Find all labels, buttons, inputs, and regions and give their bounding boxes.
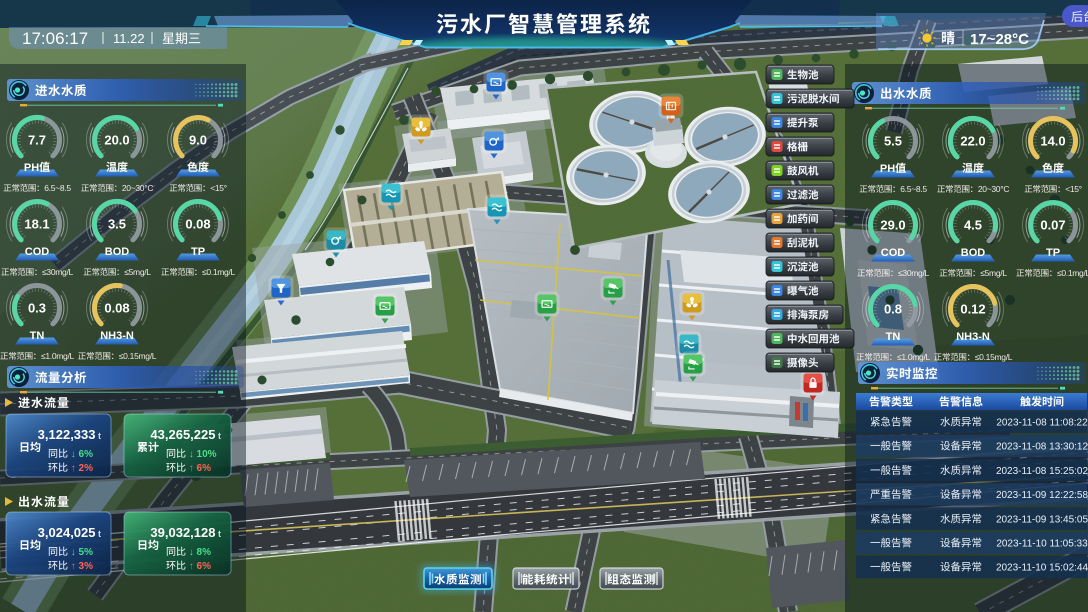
svg-text:29.0: 29.0 xyxy=(880,218,905,233)
svg-text:20.0: 20.0 xyxy=(104,133,129,148)
svg-text:0.12: 0.12 xyxy=(960,302,985,317)
svg-text:摄像头: 摄像头 xyxy=(787,356,819,371)
svg-text:COD: COD xyxy=(25,243,50,259)
svg-text:2023-11-08 15:25:02: 2023-11-08 15:25:02 xyxy=(996,466,1088,477)
svg-text:中水回用池: 中水回用池 xyxy=(787,332,840,347)
svg-text:一般告警: 一般告警 xyxy=(870,463,912,478)
svg-text:正常范围：≤5mg/L: 正常范围：≤5mg/L xyxy=(83,266,151,278)
svg-text:告警信息: 告警信息 xyxy=(939,394,983,410)
svg-text:9.0: 9.0 xyxy=(189,133,207,148)
svg-text:BOD: BOD xyxy=(961,244,986,260)
svg-text:格栅: 格栅 xyxy=(787,140,808,155)
svg-text:触发时间: 触发时间 xyxy=(1020,394,1064,410)
svg-text:2023-11-10 11:05:33: 2023-11-10 11:05:33 xyxy=(996,539,1088,550)
svg-text:生物池: 生物池 xyxy=(787,68,819,83)
svg-text:一般告警: 一般告警 xyxy=(870,560,912,575)
svg-text:出水流量: 出水流量 xyxy=(18,493,70,510)
svg-text:正常范围：6.5~8.5: 正常范围：6.5~8.5 xyxy=(859,183,927,195)
svg-text:TN: TN xyxy=(886,328,901,344)
svg-text:能耗统计: 能耗统计 xyxy=(522,572,570,588)
svg-text:39,032,128 t: 39,032,128 t xyxy=(150,525,221,540)
svg-text:曝气池: 曝气池 xyxy=(787,284,819,299)
svg-text:3,122,333 t: 3,122,333 t xyxy=(38,427,101,442)
svg-text:告警类型: 告警类型 xyxy=(869,394,913,410)
svg-text:后台: 后台 xyxy=(1071,8,1088,25)
svg-text:2023-11-09 13:45:05: 2023-11-09 13:45:05 xyxy=(996,514,1088,525)
svg-text:0.08: 0.08 xyxy=(104,301,129,316)
svg-text:同比 ↓ 8%: 同比 ↓ 8% xyxy=(166,543,211,558)
svg-text:进水流量: 进水流量 xyxy=(18,394,70,411)
svg-text:TN: TN xyxy=(30,327,45,343)
svg-text:出水水质: 出水水质 xyxy=(880,83,932,102)
svg-text:同比 ↓ 10%: 同比 ↓ 10% xyxy=(166,445,217,460)
svg-text:TP: TP xyxy=(1046,244,1060,260)
svg-text:正常范围：≤0.1mg/L: 正常范围：≤0.1mg/L xyxy=(161,266,236,278)
svg-text:加药间: 加药间 xyxy=(787,212,819,227)
svg-text:BOD: BOD xyxy=(105,243,130,259)
svg-text:设备异常: 设备异常 xyxy=(940,439,982,454)
svg-text:刮泥机: 刮泥机 xyxy=(787,236,819,251)
svg-text:正常范围：≤1.0mg/L: 正常范围：≤1.0mg/L xyxy=(0,350,75,362)
svg-text:正常范围：≤30mg/L: 正常范围：≤30mg/L xyxy=(857,267,929,279)
svg-text:沉淀池: 沉淀池 xyxy=(787,260,819,275)
svg-text:正常范围：6.5~8.5: 正常范围：6.5~8.5 xyxy=(3,182,71,194)
svg-text:紧急告警: 紧急告警 xyxy=(870,415,912,430)
svg-text:水质异常: 水质异常 xyxy=(940,511,982,526)
svg-text:一般告警: 一般告警 xyxy=(870,536,912,551)
svg-text:4.5: 4.5 xyxy=(964,218,982,233)
svg-text:严重告警: 严重告警 xyxy=(870,487,912,502)
svg-text:2023-11-08 11:08:22: 2023-11-08 11:08:22 xyxy=(996,418,1088,429)
svg-text:温度: 温度 xyxy=(962,160,984,176)
svg-text:水质异常: 水质异常 xyxy=(940,463,982,478)
svg-text:正常范围：<15°: 正常范围：<15° xyxy=(1024,183,1082,195)
svg-text:提升泵: 提升泵 xyxy=(787,116,819,131)
svg-text:17:06:17: 17:06:17 xyxy=(22,29,88,48)
svg-text:温度: 温度 xyxy=(106,159,128,175)
svg-text:正常范围：≤30mg/L: 正常范围：≤30mg/L xyxy=(1,266,73,278)
svg-text:TP: TP xyxy=(191,243,205,259)
svg-text:排海泵房: 排海泵房 xyxy=(787,308,829,323)
svg-text:18.1: 18.1 xyxy=(24,217,49,232)
svg-text:PH值: PH值 xyxy=(880,160,906,176)
svg-text:22.0: 22.0 xyxy=(960,134,985,149)
svg-text:紧急告警: 紧急告警 xyxy=(870,511,912,526)
svg-text:正常范围：≤1.0mg/L: 正常范围：≤1.0mg/L xyxy=(856,351,931,363)
svg-text:正常范围：<15°: 正常范围：<15° xyxy=(169,182,227,194)
svg-text:同比 ↓ 5%: 同比 ↓ 5% xyxy=(48,543,93,558)
svg-text:流量分析: 流量分析 xyxy=(35,367,87,386)
svg-text:环比 ↑ 3%: 环比 ↑ 3% xyxy=(48,557,93,572)
svg-text:2023-11-08 13:30:12: 2023-11-08 13:30:12 xyxy=(996,442,1088,453)
svg-text:5.5: 5.5 xyxy=(884,134,902,149)
svg-text:0.3: 0.3 xyxy=(28,301,46,316)
svg-text:正常范围：≤0.15mg/L: 正常范围：≤0.15mg/L xyxy=(78,350,157,362)
svg-text:43,265,225 t: 43,265,225 t xyxy=(150,427,221,442)
svg-text:0.8: 0.8 xyxy=(884,302,902,317)
svg-text:过滤池: 过滤池 xyxy=(787,188,819,203)
svg-text:组态监测: 组态监测 xyxy=(608,572,656,588)
svg-text:星期三: 星期三 xyxy=(162,28,201,47)
svg-text:水质监测: 水质监测 xyxy=(434,572,482,588)
svg-text:环比 ↑ 6%: 环比 ↑ 6% xyxy=(166,459,211,474)
svg-text:鼓风机: 鼓风机 xyxy=(787,164,819,179)
svg-text:环比 ↑ 6%: 环比 ↑ 6% xyxy=(166,557,211,572)
svg-text:3,024,025 t: 3,024,025 t xyxy=(38,525,101,540)
svg-text:NH3-N: NH3-N xyxy=(100,327,134,343)
svg-text:正常范围：≤5mg/L: 正常范围：≤5mg/L xyxy=(939,267,1007,279)
svg-text:PH值: PH值 xyxy=(24,159,50,175)
svg-text:2023-11-09 12:22:58: 2023-11-09 12:22:58 xyxy=(996,490,1088,501)
svg-text:正常范围：≤0.15mg/L: 正常范围：≤0.15mg/L xyxy=(934,351,1013,363)
svg-text:污泥脱水间: 污泥脱水间 xyxy=(787,92,840,107)
svg-text:色度: 色度 xyxy=(1042,160,1064,176)
svg-text:3.5: 3.5 xyxy=(108,217,126,232)
svg-text:7.7: 7.7 xyxy=(28,133,46,148)
svg-text:一般告警: 一般告警 xyxy=(870,439,912,454)
svg-text:环比 ↑ 2%: 环比 ↑ 2% xyxy=(48,459,93,474)
svg-text:污水厂智慧管理系统: 污水厂智慧管理系统 xyxy=(436,7,652,39)
svg-text:色度: 色度 xyxy=(187,159,209,175)
svg-text:11.22: 11.22 xyxy=(113,31,145,46)
svg-text:进水水质: 进水水质 xyxy=(35,80,87,99)
svg-text:0.08: 0.08 xyxy=(185,217,210,232)
svg-text:NH3-N: NH3-N xyxy=(956,328,990,344)
svg-text:COD: COD xyxy=(881,244,906,260)
svg-text:设备异常: 设备异常 xyxy=(940,487,982,502)
svg-text:正常范围：≤0.1mg/L: 正常范围：≤0.1mg/L xyxy=(1016,267,1088,279)
svg-text:设备异常: 设备异常 xyxy=(940,560,982,575)
svg-text:0.07: 0.07 xyxy=(1040,218,1065,233)
svg-text:2023-11-10 15:02:44: 2023-11-10 15:02:44 xyxy=(996,563,1088,574)
svg-text:设备异常: 设备异常 xyxy=(940,536,982,551)
svg-text:正常范围：20~30°C: 正常范围：20~30°C xyxy=(81,182,153,194)
svg-text:水质异常: 水质异常 xyxy=(940,415,982,430)
svg-text:14.0: 14.0 xyxy=(1040,134,1065,149)
svg-text:实时监控: 实时监控 xyxy=(886,363,938,382)
svg-text:同比 ↓ 6%: 同比 ↓ 6% xyxy=(48,445,93,460)
svg-text:正常范围：20~30°C: 正常范围：20~30°C xyxy=(937,183,1009,195)
svg-text:晴: 晴 xyxy=(941,28,955,48)
svg-text:17~28°C: 17~28°C xyxy=(970,31,1029,48)
